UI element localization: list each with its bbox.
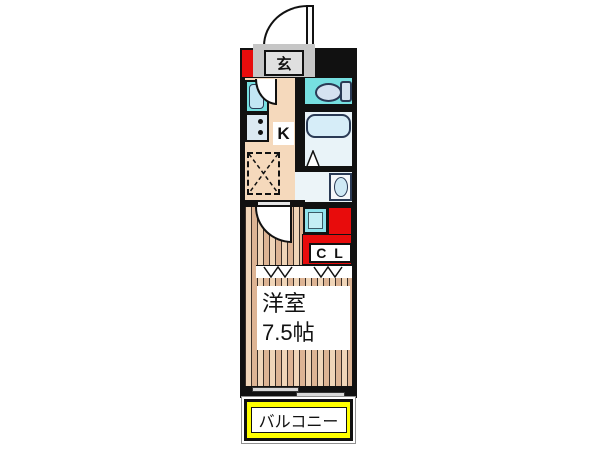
stove-burner-icon xyxy=(258,119,263,124)
balcony-outer-frame: バルコニー xyxy=(241,396,356,444)
red-accent-block xyxy=(242,50,253,77)
room-label: 洋室 7.5帖 xyxy=(257,286,350,350)
entry-door-leaf-icon xyxy=(306,5,314,47)
right-wall xyxy=(352,78,357,392)
toilet-bath-wall xyxy=(305,104,352,112)
washing-machine-inner xyxy=(308,212,323,229)
bath-folding-door-icon xyxy=(306,150,320,167)
room-size-text: 7.5帖 xyxy=(262,318,315,347)
refrigerator-space-icon xyxy=(247,152,280,195)
balcony-area: バルコニー xyxy=(244,399,353,441)
balcony-label: バルコニー xyxy=(251,407,347,433)
bathtub-icon xyxy=(306,114,351,138)
kitchen-label: K xyxy=(273,122,294,145)
divider-wall xyxy=(295,78,305,172)
floorplan-canvas: 玄 K xyxy=(0,0,600,450)
bifold-door-marks-icon xyxy=(256,266,352,278)
toilet-bowl-icon xyxy=(315,83,342,102)
entry-door-swing-arc-icon xyxy=(263,5,308,46)
closet-label: C L xyxy=(309,243,352,263)
sliding-window-pane-icon xyxy=(252,387,299,392)
room-wall-stub xyxy=(245,200,256,207)
stove-unit xyxy=(245,113,269,142)
closet-bifold-marks-strip xyxy=(256,265,352,278)
vanity-sink-icon xyxy=(334,177,348,197)
room-door-leaf-icon xyxy=(256,200,292,207)
room-name-text: 洋室 xyxy=(262,289,306,318)
closet-area xyxy=(328,207,352,235)
room-wall-stub xyxy=(292,200,305,207)
washing-machine-space-icon xyxy=(303,207,328,234)
stove-burner-icon xyxy=(258,130,263,135)
apartment-floorplan: 玄 K xyxy=(240,0,358,446)
entrance-label: 玄 xyxy=(264,50,304,76)
refrigerator-cross-icon xyxy=(249,154,278,193)
